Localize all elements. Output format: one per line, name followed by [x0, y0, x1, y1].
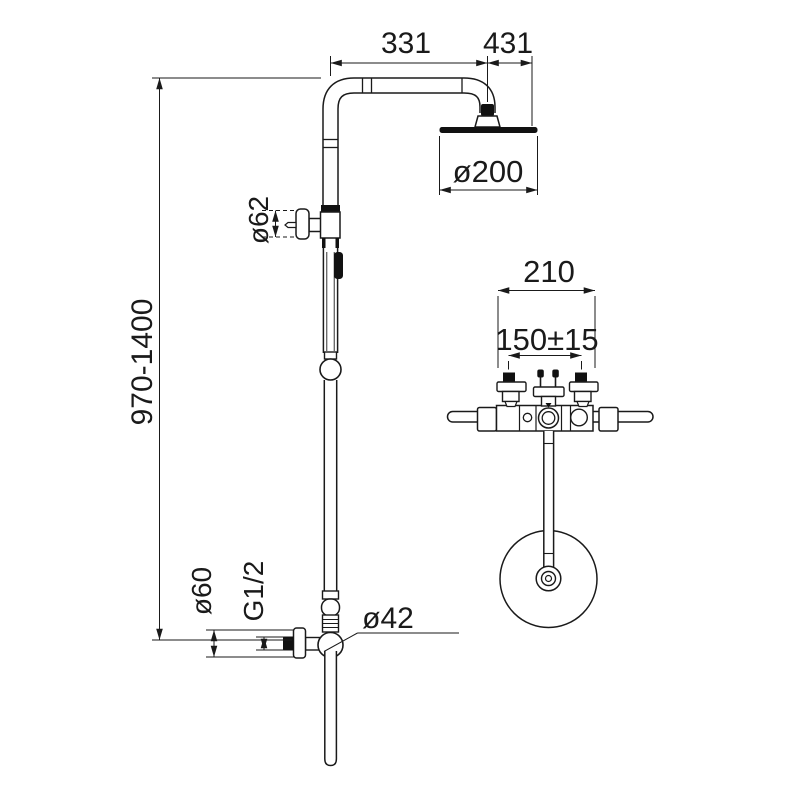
- riser-column: [320, 248, 343, 591]
- dim-arm-length: 331: [381, 27, 431, 60]
- cartridge-port: [571, 409, 588, 426]
- diverter-shadow: [336, 238, 340, 248]
- hose-joint: [323, 591, 339, 599]
- inlet-flange: [497, 382, 526, 392]
- head-connector: [475, 116, 500, 127]
- bar-nut-left: [478, 408, 497, 432]
- diverter-assembly: [285, 205, 340, 248]
- inlet-nut: [503, 392, 520, 402]
- dim-pipe-diameter: ø42: [362, 602, 414, 635]
- screw-port: [523, 413, 531, 421]
- diverter-shadow: [322, 238, 326, 248]
- inlet-taper: [577, 402, 589, 407]
- down-pipe-fill: [544, 431, 553, 570]
- inlet-taper: [505, 402, 517, 407]
- slider-ball: [320, 359, 341, 380]
- inlet-left: [497, 373, 526, 407]
- pipe-socket-inner: [542, 412, 555, 425]
- dim-total-reach: 431: [483, 27, 533, 60]
- handle-cap: [322, 599, 340, 616]
- dimension-arm: 331 431: [331, 27, 534, 126]
- dim-knob-diameter: ø62: [243, 196, 274, 244]
- hand-shower-holder: [334, 252, 343, 279]
- inlet-nut: [575, 392, 592, 402]
- hand-shower-assembly: [283, 591, 343, 766]
- dim-bar-width: 210: [523, 254, 575, 289]
- wall-thread-nut: [283, 637, 294, 651]
- dim-thread-size: G1/2: [238, 561, 269, 622]
- dimension-head-diameter: ø200: [440, 136, 538, 195]
- shower-dimension-drawing: 331 431 ø200 ø62 970-1400: [0, 0, 800, 800]
- center-flange: [534, 387, 565, 397]
- head-nut: [481, 104, 494, 116]
- dimension-pipe-diameter: ø42: [324, 602, 459, 652]
- dimension-wall-fitting: ø60 G1/2: [186, 561, 294, 657]
- dim-escutcheon-diameter: ø60: [186, 567, 217, 615]
- dim-inlet-spacing: 150±15: [495, 322, 598, 357]
- dimension-height: 970-1400: [126, 78, 321, 640]
- dim-head-diameter: ø200: [453, 154, 524, 189]
- diverter-top-nut: [321, 205, 340, 212]
- diverter-knob: [296, 209, 309, 239]
- dimension-inlet-spacing: 150±15: [495, 322, 598, 370]
- overhead-shower-head: [440, 104, 538, 133]
- head-hub-inner: [546, 576, 552, 582]
- dimension-knob-diameter: ø62: [243, 196, 297, 244]
- pipe-outline: [331, 86, 488, 213]
- gooseneck-pipe: [323, 79, 488, 214]
- drawing-canvas: 331 431 ø200 ø62 970-1400: [0, 0, 800, 800]
- inlet-flange: [570, 382, 599, 392]
- diverter-body: [321, 212, 341, 238]
- inlet-cap: [503, 373, 515, 383]
- side-view-column: 331 431 ø200 ø62 970-1400: [126, 27, 538, 766]
- inlet-cap: [575, 373, 587, 383]
- wall-escutcheon: [294, 628, 306, 658]
- head-plate: [440, 127, 538, 133]
- inlet-right: [570, 373, 599, 407]
- pin-cap: [537, 370, 544, 378]
- pin-cap: [552, 370, 559, 378]
- top-view-mixer: 210 150±15: [448, 254, 654, 628]
- slider-collar: [325, 352, 337, 359]
- knob-pointer: [285, 223, 296, 228]
- center-fitting: [534, 370, 565, 408]
- pipe-bore: [331, 86, 488, 214]
- wand-body: [325, 651, 337, 766]
- dim-height-range: 970-1400: [126, 299, 159, 426]
- bar-nut-right: [599, 408, 618, 432]
- head-top-view: [500, 408, 597, 628]
